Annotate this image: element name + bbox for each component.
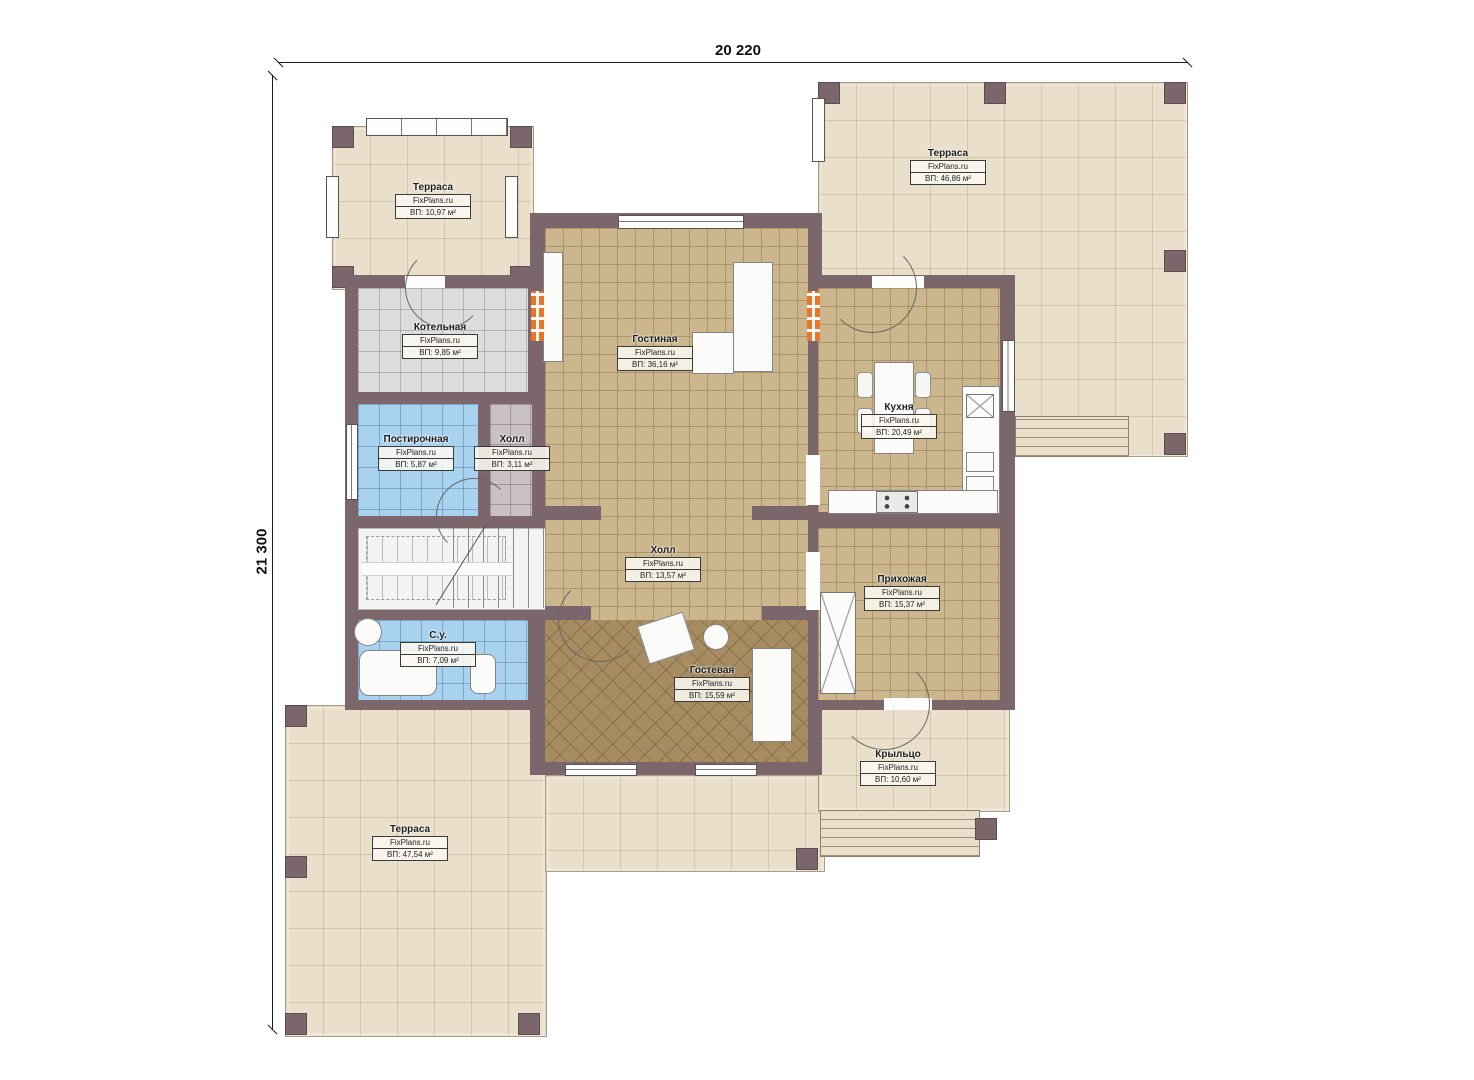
column — [332, 126, 354, 148]
door-arc — [558, 578, 642, 662]
door-arc — [405, 248, 485, 328]
room-name: Холл — [474, 434, 550, 445]
doorway-opening — [806, 455, 820, 505]
room-area: ВП: 46,86 м² — [911, 172, 985, 184]
room-label-hall-small: Холл FixPlans.ru ВП: 3,11 м² — [474, 434, 550, 472]
room-name: Терраса — [372, 824, 448, 835]
room-area: ВП: 15,59 м² — [675, 689, 749, 701]
window-symbol — [366, 118, 508, 136]
column — [975, 818, 997, 840]
dimension-line-left — [272, 75, 273, 1030]
wall-stub — [752, 506, 808, 520]
chair-symbol — [915, 372, 931, 398]
room-site: FixPlans.ru — [911, 161, 985, 172]
room-name: Терраса — [395, 182, 471, 193]
porch-steps-symbol — [820, 810, 980, 857]
sofa-symbol — [752, 648, 792, 742]
room-area: ВП: 10,97 м² — [396, 206, 470, 218]
room-area: ВП: 15,37 м² — [865, 598, 939, 610]
wall-stub — [545, 506, 601, 520]
room-label-kotelnaya: Котельная FixPlans.ru ВП: 9,85 м² — [402, 322, 478, 360]
terrace-bottom-left-slab — [285, 705, 547, 1037]
dimension-line-top — [278, 62, 1188, 63]
room-area: ВП: 7,09 м² — [401, 654, 475, 666]
column — [796, 848, 818, 870]
room-name: Гостевая — [674, 665, 750, 676]
room-label-terrace-tr: Терраса FixPlans.ru ВП: 46,86 м² — [910, 148, 986, 186]
room-site: FixPlans.ru — [379, 447, 453, 458]
room-area: ВП: 20,49 м² — [862, 426, 936, 438]
room-area: ВП: 5,87 м² — [379, 458, 453, 470]
room-name: С.у. — [400, 630, 476, 641]
room-site: FixPlans.ru — [862, 415, 936, 426]
room-site: FixPlans.ru — [861, 762, 935, 773]
column — [984, 82, 1006, 104]
room-label-livingroom: Гостиная FixPlans.ru ВП: 36,16 м² — [617, 334, 693, 372]
room-name: Гостиная — [617, 334, 693, 345]
room-site: FixPlans.ru — [865, 587, 939, 598]
room-label-postirochnaya: Постирочная FixPlans.ru ВП: 5,87 м² — [378, 434, 454, 472]
room-site: FixPlans.ru — [475, 447, 549, 458]
wardrobe-symbol — [820, 592, 856, 694]
room-name: Постирочная — [378, 434, 454, 445]
room-site: FixPlans.ru — [401, 643, 475, 654]
room-name: Крыльцо — [860, 749, 936, 760]
room-name: Кухня — [861, 402, 937, 413]
room-area: ВП: 10,60 м² — [861, 773, 935, 785]
column — [1164, 250, 1186, 272]
room-site: FixPlans.ru — [396, 195, 470, 206]
stair-landing-band — [362, 562, 512, 576]
room-name: Терраса — [910, 148, 986, 159]
room-name: Котельная — [402, 322, 478, 333]
doorway-opening — [806, 552, 820, 610]
dimension-label-left: 21 300 — [254, 502, 271, 602]
sofa-symbol — [692, 332, 734, 374]
room-label-terrace-tl: Терраса FixPlans.ru ВП: 10,97 м² — [395, 182, 471, 220]
room-name: Прихожая — [864, 574, 940, 585]
room-area: ВП: 36,16 м² — [618, 358, 692, 370]
side-table-symbol — [703, 624, 729, 650]
column — [285, 1013, 307, 1035]
sofa-symbol — [733, 262, 773, 372]
chair-symbol — [857, 372, 873, 398]
room-site: FixPlans.ru — [626, 558, 700, 569]
radiator-symbol — [807, 291, 820, 341]
media-unit-symbol — [543, 252, 563, 362]
room-label-su: С.у. FixPlans.ru ВП: 7,09 м² — [400, 630, 476, 668]
washbasin-symbol — [354, 618, 382, 646]
room-site: FixPlans.ru — [618, 347, 692, 358]
room-label-gostevaya: Гостевая FixPlans.ru ВП: 15,59 м² — [674, 665, 750, 703]
terrace-bottom-extension-slab — [545, 775, 825, 872]
column — [510, 126, 532, 148]
room-label-hall-main: Холл FixPlans.ru ВП: 13,57 м² — [625, 545, 701, 583]
column — [518, 1013, 540, 1035]
column — [285, 705, 307, 727]
column — [1164, 433, 1186, 455]
window-symbol — [326, 176, 339, 238]
window-symbol — [565, 764, 637, 776]
dimension-label-top: 20 220 — [688, 42, 788, 59]
appliance-symbol — [966, 452, 994, 472]
window-symbol — [812, 98, 825, 162]
floor-plan: 20 220 21 300 — [0, 0, 1474, 1080]
column — [1164, 82, 1186, 104]
room-label-kitchen: Кухня FixPlans.ru ВП: 20,49 м² — [861, 402, 937, 440]
column — [285, 856, 307, 878]
room-site: FixPlans.ru — [373, 837, 447, 848]
door-arc — [827, 243, 917, 333]
room-label-prihozhaya: Прихожая FixPlans.ru ВП: 15,37 м² — [864, 574, 940, 612]
window-symbol — [1002, 340, 1015, 412]
stove-symbol — [876, 491, 918, 513]
window-symbol — [505, 176, 518, 238]
room-area: ВП: 47,54 м² — [373, 848, 447, 860]
room-area: ВП: 13,57 м² — [626, 569, 700, 581]
room-name: Холл — [625, 545, 701, 556]
room-site: FixPlans.ru — [675, 678, 749, 689]
radiator-symbol — [531, 291, 544, 341]
room-site: FixPlans.ru — [403, 335, 477, 346]
terrace-steps-symbol — [1015, 416, 1129, 457]
window-symbol — [618, 215, 744, 229]
window-symbol — [346, 424, 358, 500]
sink-symbol — [966, 394, 994, 418]
window-symbol — [695, 764, 757, 776]
room-area: ВП: 3,11 м² — [475, 458, 549, 470]
room-label-terrace-bl: Терраса FixPlans.ru ВП: 47,54 м² — [372, 824, 448, 862]
room-label-kryltso: Крыльцо FixPlans.ru ВП: 10,60 м² — [860, 749, 936, 787]
wall-stub — [762, 606, 808, 620]
room-area: ВП: 9,85 м² — [403, 346, 477, 358]
